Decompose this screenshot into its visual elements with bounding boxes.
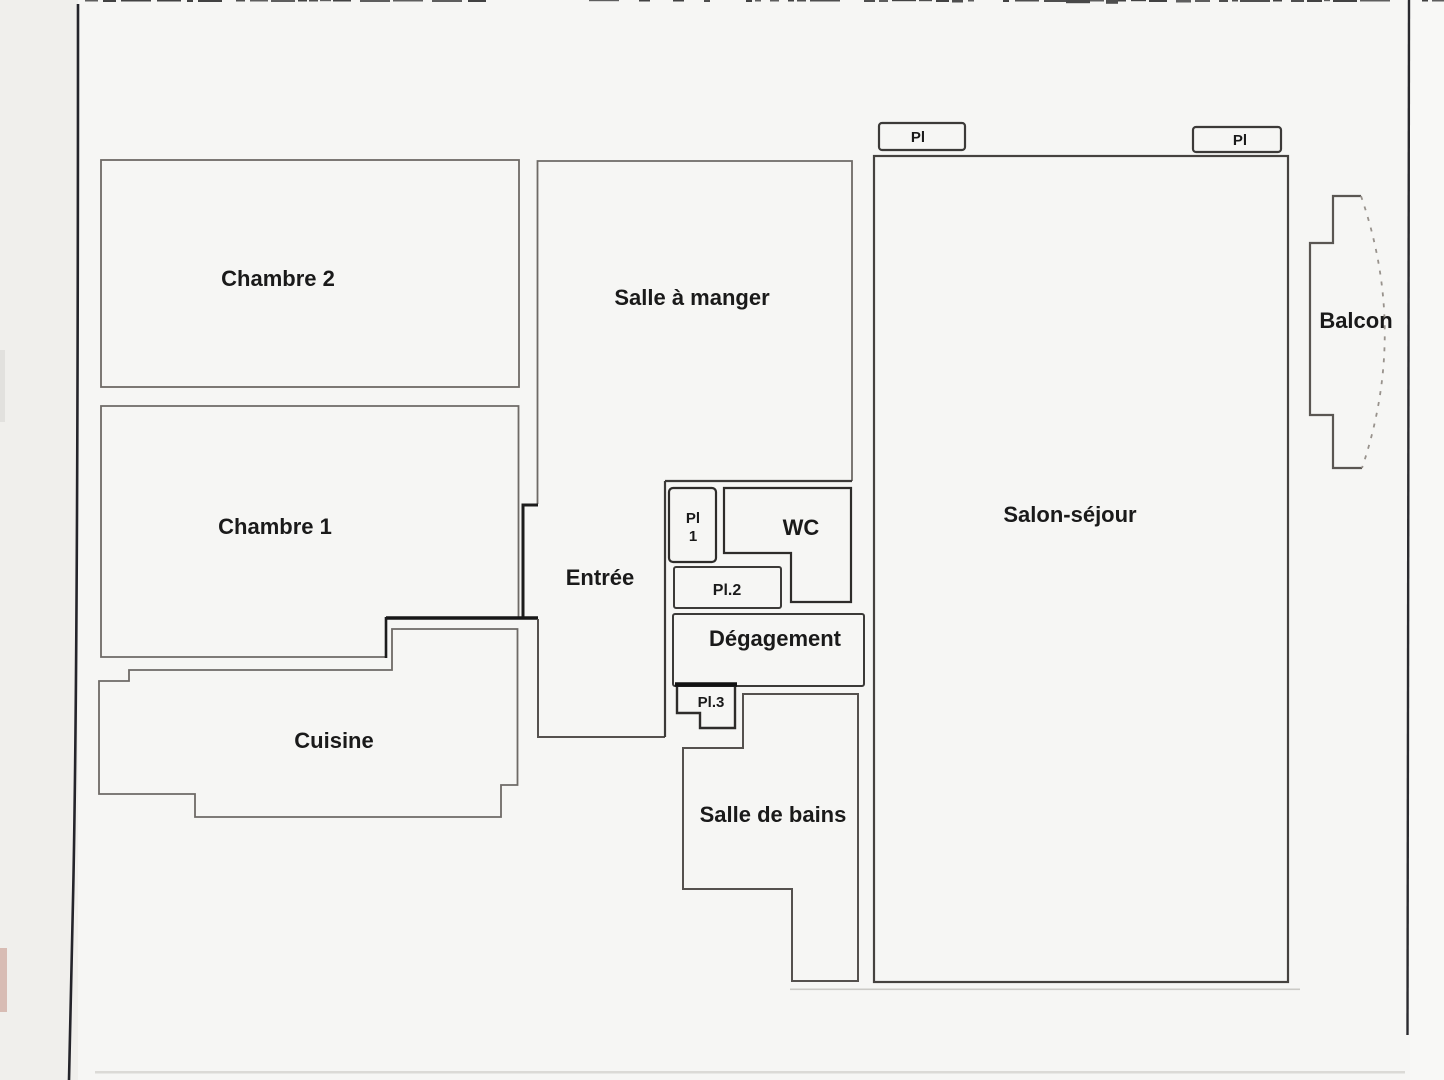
- svg-text:Salon-séjour: Salon-séjour: [1003, 502, 1137, 527]
- svg-text:Pl: Pl: [1233, 132, 1247, 149]
- svg-text:Cuisine: Cuisine: [294, 728, 373, 753]
- svg-text:Salle de bains: Salle de bains: [700, 802, 847, 827]
- svg-text:Pl.3: Pl.3: [698, 694, 725, 711]
- svg-text:Balcon: Balcon: [1319, 308, 1392, 333]
- svg-text:WC: WC: [783, 515, 820, 540]
- svg-text:Pl: Pl: [911, 129, 925, 146]
- svg-text:Chambre 1: Chambre 1: [218, 514, 332, 539]
- svg-text:Dégagement: Dégagement: [709, 626, 842, 651]
- svg-text:Salle à manger: Salle à manger: [614, 285, 770, 310]
- svg-text:1: 1: [689, 528, 697, 545]
- svg-text:Chambre 2: Chambre 2: [221, 266, 335, 291]
- svg-text:Pl: Pl: [686, 510, 700, 527]
- svg-text:Pl.2: Pl.2: [713, 582, 742, 599]
- svg-text:Entrée: Entrée: [566, 565, 634, 590]
